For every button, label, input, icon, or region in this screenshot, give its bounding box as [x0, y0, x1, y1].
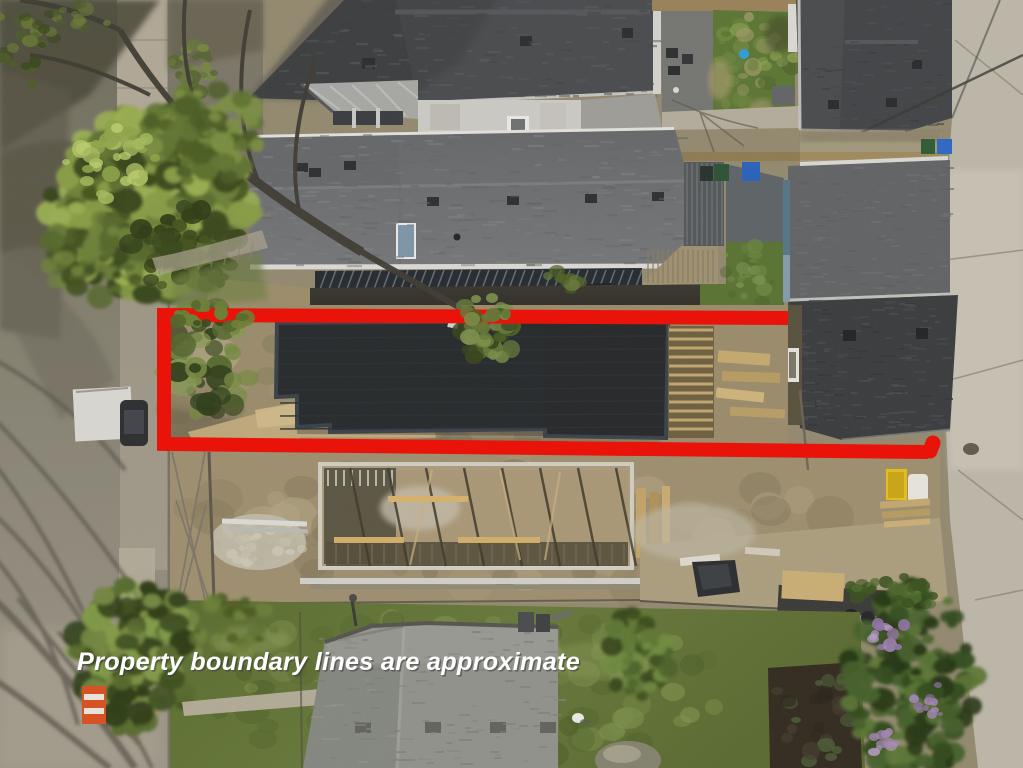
svg-text:Property boundary lines are ap: Property boundary lines are approximate [77, 648, 580, 676]
